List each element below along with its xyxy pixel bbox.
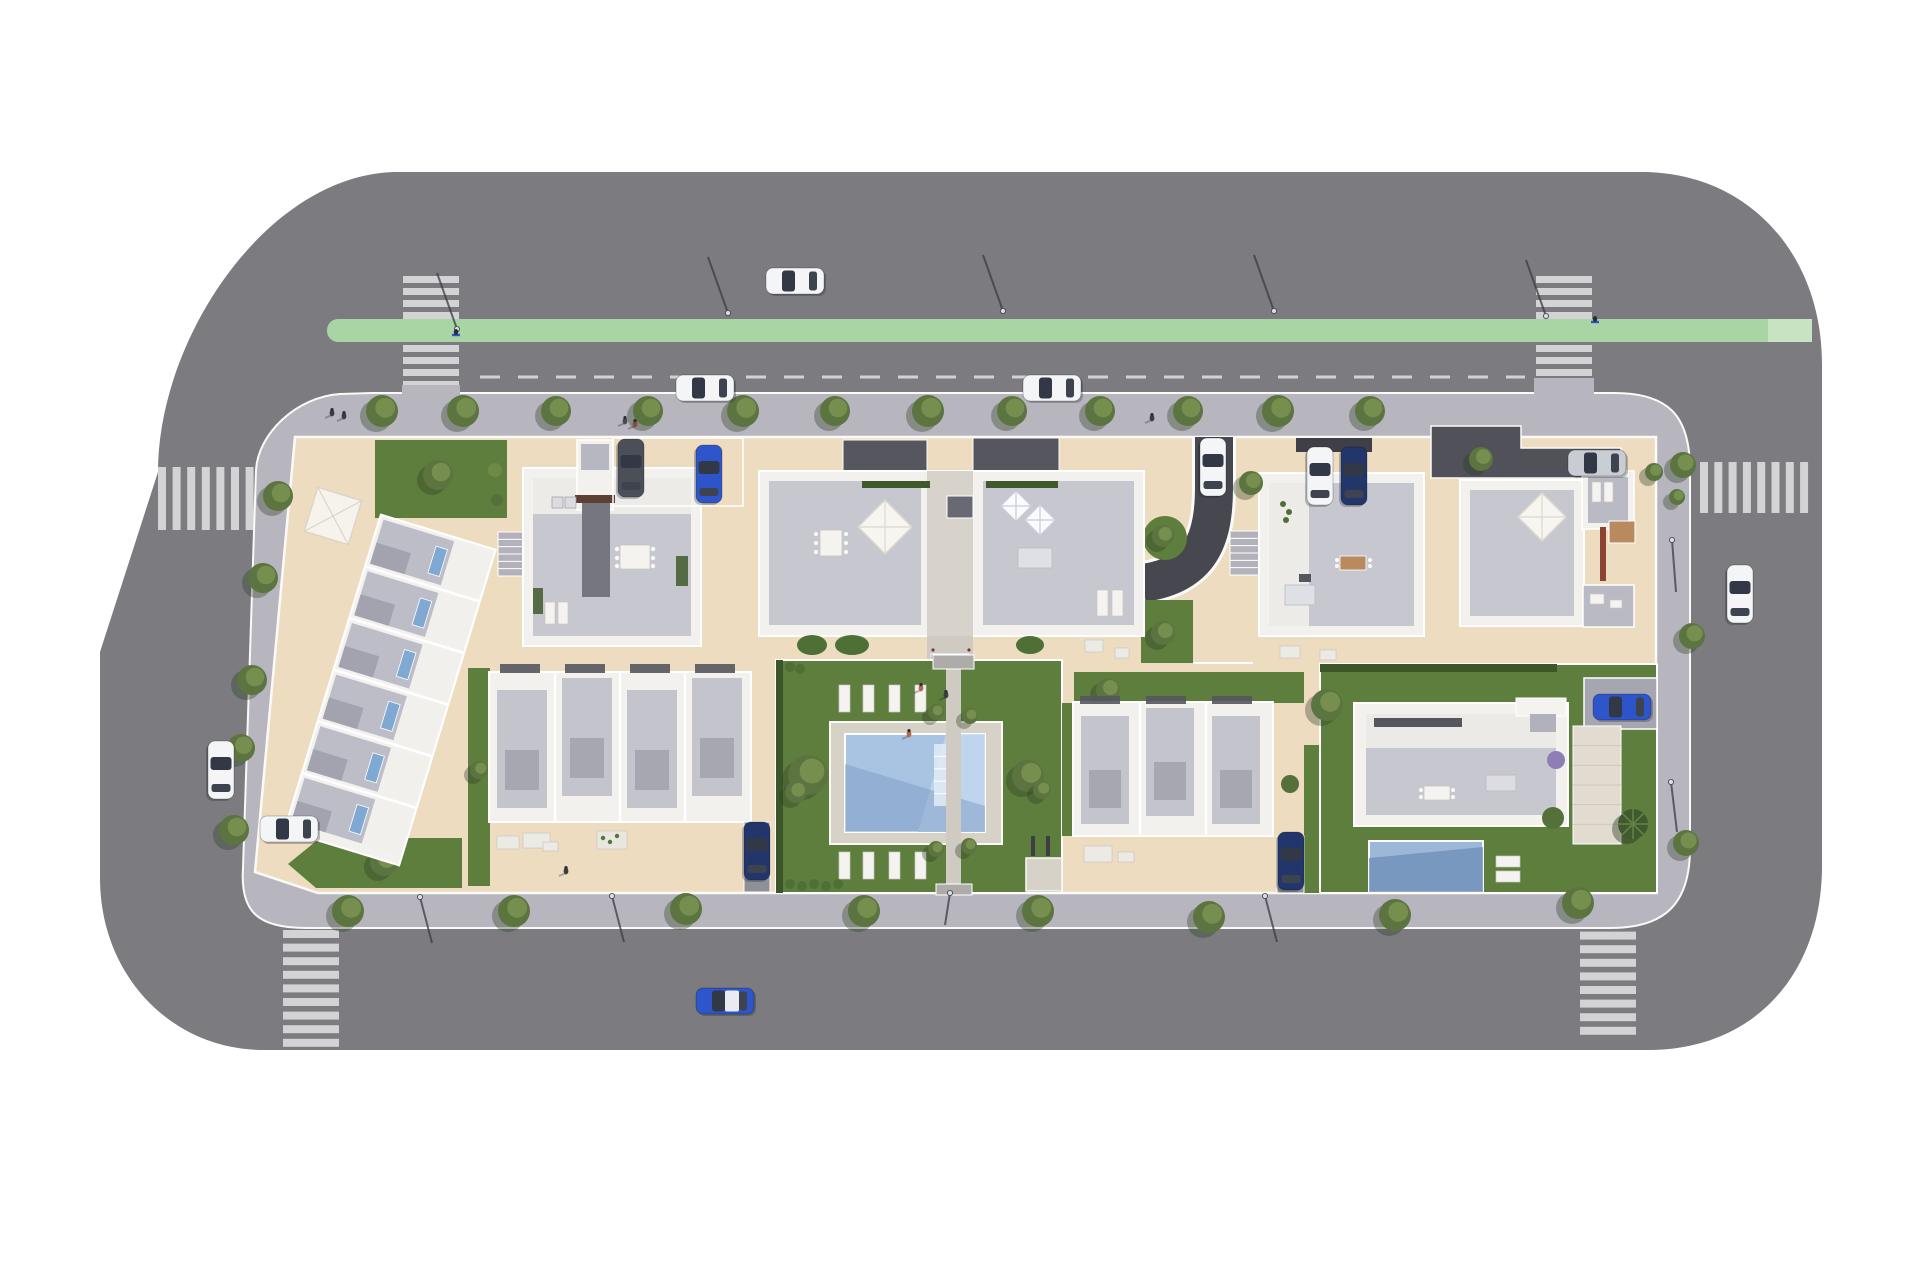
car-building-c-carport-white bbox=[1305, 447, 1333, 507]
villa-roof-box bbox=[1516, 698, 1566, 716]
building-b-bush-3 bbox=[1016, 636, 1044, 654]
duplex-e-patio-3-inner bbox=[635, 750, 669, 790]
duplex-f-patio-3-inner bbox=[1220, 770, 1252, 808]
building-d-terrace-seat bbox=[1610, 600, 1622, 608]
villa-hedge-top bbox=[1320, 664, 1557, 672]
building-b-lounger-2 bbox=[1112, 590, 1123, 616]
duplex-e-garage-door-4 bbox=[695, 664, 735, 673]
building-b-garage-roof-left bbox=[843, 440, 927, 472]
villa-dining-table bbox=[1424, 786, 1450, 800]
building-b-roof-hedge-left bbox=[862, 481, 930, 488]
building-b-lounge-set bbox=[1018, 548, 1052, 568]
building-d-wood-table bbox=[1609, 521, 1635, 543]
building-b-lounger-1 bbox=[1097, 590, 1108, 616]
duplex-e-patio-chair bbox=[543, 842, 558, 851]
duplex-f-patio-1-inner bbox=[1089, 770, 1121, 808]
garden-shower-post-1 bbox=[1031, 836, 1035, 856]
car-bottom-road-blue bbox=[696, 988, 756, 1016]
garden-lounger-6 bbox=[863, 852, 874, 879]
car-left-corner-white bbox=[260, 816, 320, 844]
car-right-road-white bbox=[1725, 565, 1753, 625]
duplex-e-garage-door-3 bbox=[630, 664, 670, 673]
duplex-e-garage-door-2 bbox=[565, 664, 605, 673]
building-a-lounger-2 bbox=[558, 602, 568, 624]
building-d-lower-terrace bbox=[1583, 585, 1634, 627]
villa-roof-stairs bbox=[1530, 714, 1556, 732]
bush-lawn-top-left-2 bbox=[491, 494, 503, 506]
car-building-c-carport-navy bbox=[1339, 447, 1367, 507]
garden-shower-plaza bbox=[1026, 858, 1062, 891]
bush-duplex-f-right bbox=[1281, 775, 1299, 793]
building-b-dining-set bbox=[820, 530, 842, 556]
building-b-bush-1 bbox=[797, 635, 827, 655]
building-a-ac-unit-1 bbox=[552, 497, 563, 508]
villa-roof-dark-strip bbox=[1374, 718, 1462, 727]
bush-villa-green bbox=[1542, 807, 1564, 829]
lawn-duplex-f-right bbox=[1304, 745, 1320, 893]
building-d-terrace-table bbox=[1590, 594, 1604, 604]
garden-shower-post-2 bbox=[1046, 836, 1050, 856]
car-top-road-white bbox=[766, 268, 826, 296]
garden-lounger-1 bbox=[839, 685, 850, 712]
building-b-stairwell bbox=[947, 496, 973, 518]
duplex-f-patio-table bbox=[1084, 846, 1112, 862]
courtyard-table-2 bbox=[1115, 648, 1129, 658]
building-a-planter-1 bbox=[533, 588, 543, 614]
duplex-f-patio-chair bbox=[1118, 852, 1134, 862]
building-a-lounger-1 bbox=[545, 602, 555, 624]
crosswalk-bottom-left bbox=[283, 930, 339, 1047]
building-d-annex-lounger-1 bbox=[1592, 482, 1601, 502]
duplex-e-patio-3 bbox=[627, 690, 677, 808]
villa-lounger-1 bbox=[1496, 856, 1520, 867]
villa-sofa bbox=[1486, 775, 1516, 791]
building-c-sofa-set bbox=[1285, 585, 1315, 605]
building-b-garage-roof-right bbox=[973, 438, 1059, 472]
villa-lounger-2 bbox=[1496, 871, 1520, 882]
car-driveway-white bbox=[1198, 438, 1226, 498]
duplex-e-patio-2-inner bbox=[570, 738, 604, 778]
car-duplex-f-navy bbox=[1276, 832, 1304, 892]
garden-lounger-7 bbox=[889, 852, 900, 879]
duplex-f-patio-2-inner bbox=[1154, 762, 1186, 800]
car-left-road-white bbox=[206, 741, 234, 801]
bike-lane bbox=[327, 319, 1812, 342]
sidewalk-tab-crosswalk-top-right bbox=[1534, 378, 1594, 396]
garden-gate-top bbox=[933, 655, 974, 669]
duplex-e-patio-1 bbox=[497, 690, 547, 808]
building-a-ac-unit-2 bbox=[565, 497, 576, 508]
building-a-planter-2 bbox=[676, 556, 688, 586]
duplex-e-garage-door-1 bbox=[500, 664, 540, 673]
duplex-f-garage-door-1 bbox=[1080, 696, 1120, 704]
building-b-roof-hedge-right bbox=[986, 481, 1058, 488]
car-parked-lane-white-2 bbox=[1023, 375, 1083, 403]
building-a-stair-hut-roof bbox=[581, 444, 609, 470]
building-b-bush-2 bbox=[835, 635, 869, 655]
car-building-d-silver bbox=[1568, 450, 1628, 478]
duplex-e-patio-2 bbox=[562, 678, 612, 796]
duplex-e-patio-4-inner bbox=[700, 738, 734, 778]
building-c-wood-table bbox=[1340, 556, 1366, 570]
building-a-roof-table bbox=[620, 545, 650, 569]
building-c-forecourt-table bbox=[1280, 646, 1300, 658]
garden-hedge-left bbox=[776, 660, 783, 893]
building-c-grill bbox=[1299, 574, 1311, 582]
car-building-a-blue bbox=[694, 445, 722, 505]
building-a-shaded-passage bbox=[582, 503, 610, 597]
car-parked-lane-white-1 bbox=[676, 375, 736, 403]
duplex-f-garage-door-3 bbox=[1212, 696, 1252, 704]
car-building-a-dark bbox=[616, 439, 644, 499]
garden-lounger-5 bbox=[839, 852, 850, 879]
sidewalk-tab-crosswalk-top-left bbox=[402, 385, 460, 397]
duplex-e-patio-4 bbox=[692, 678, 742, 796]
car-duplex-e-navy bbox=[742, 822, 770, 882]
building-d-annex-lounger-2 bbox=[1604, 482, 1613, 502]
duplex-e-patio-table bbox=[497, 836, 519, 849]
site-plan-svg bbox=[0, 0, 1920, 1279]
duplex-e-bbq-table bbox=[597, 831, 627, 849]
building-c-forecourt-seat bbox=[1320, 650, 1336, 660]
bush-lawn-top-left-1 bbox=[488, 463, 502, 477]
garden-lounger-3 bbox=[889, 685, 900, 712]
garden-lounger-2 bbox=[863, 685, 874, 712]
building-a-carport-beam bbox=[575, 495, 615, 503]
car-villa-pad-blue bbox=[1593, 694, 1653, 722]
courtyard-table-1 bbox=[1085, 640, 1103, 652]
garden-gate-bottom bbox=[936, 884, 972, 895]
bike-lane-end-cap bbox=[1768, 319, 1812, 342]
crosswalk-bottom-right bbox=[1580, 918, 1636, 1035]
building-d-corten-wall bbox=[1600, 527, 1606, 581]
duplex-e-patio-1-inner bbox=[505, 750, 539, 790]
bush-villa-purple bbox=[1547, 751, 1565, 769]
aerial-site-plan bbox=[0, 0, 1920, 1279]
duplex-f-garage-door-2 bbox=[1146, 696, 1186, 704]
